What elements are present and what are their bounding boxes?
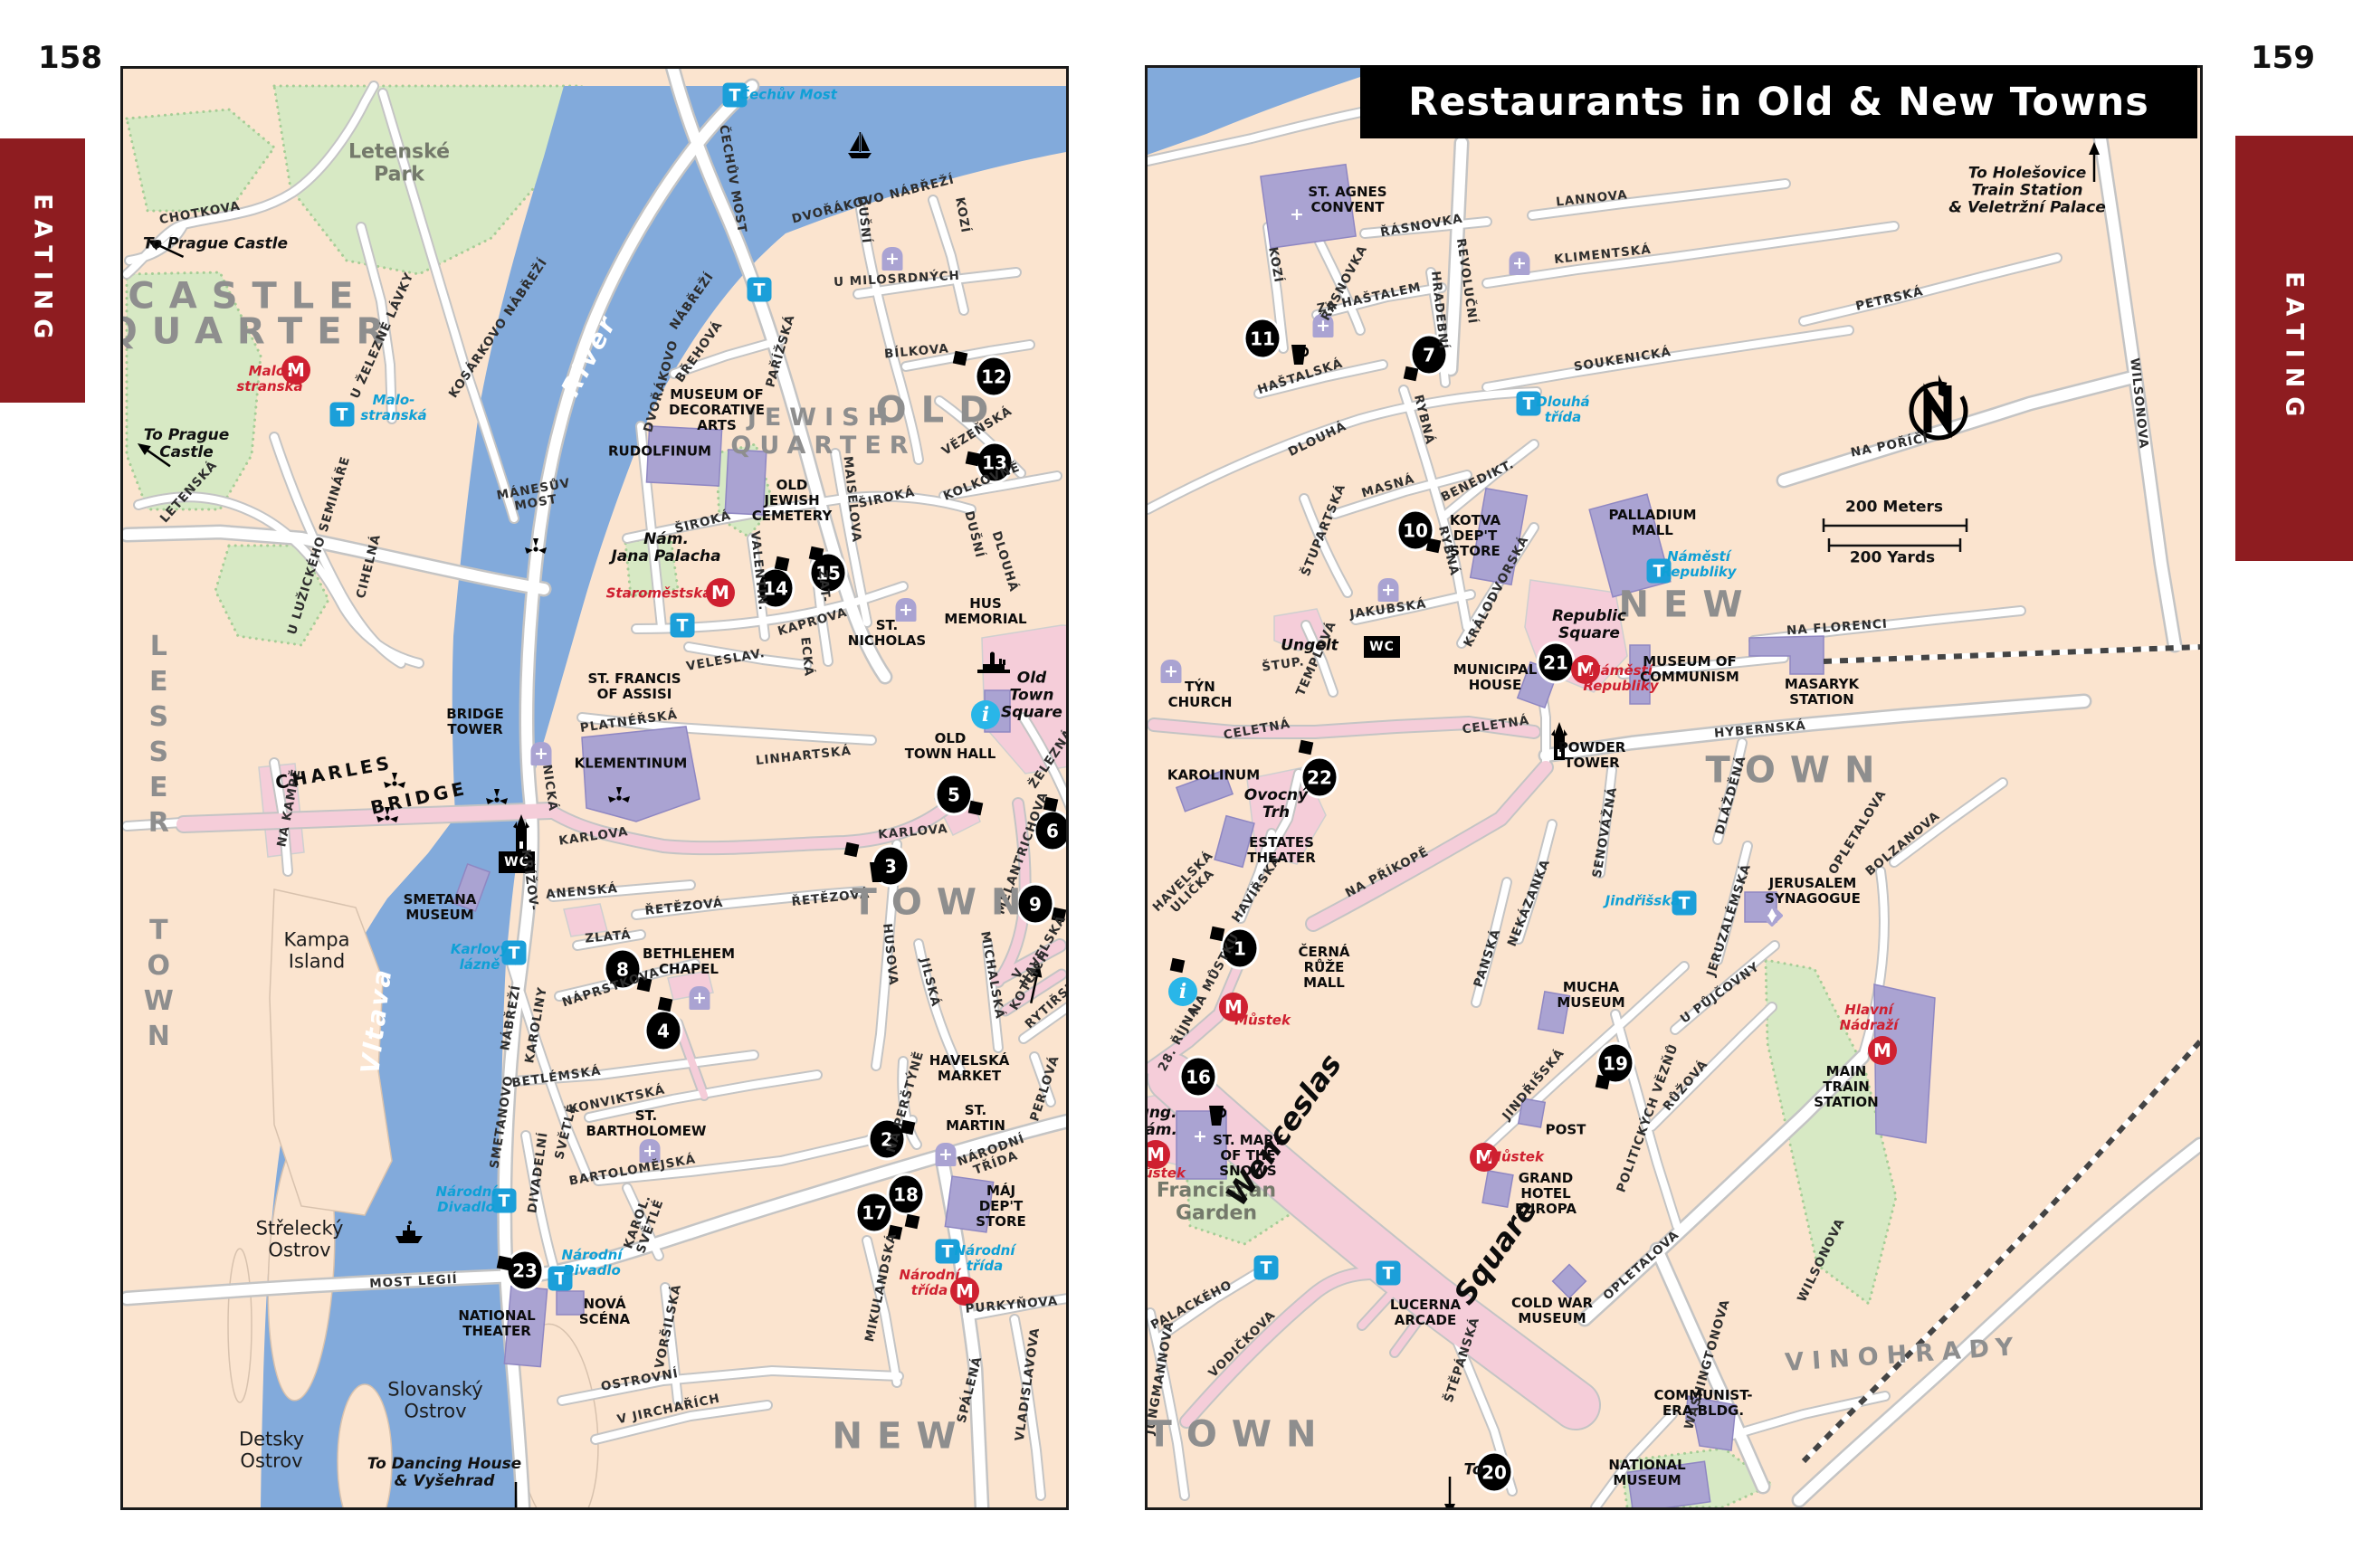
map-label: KLEMENTINUM	[575, 756, 688, 772]
metro-icon: M	[1868, 1036, 1897, 1065]
church-icon: +	[1161, 660, 1182, 683]
map-label: QUARTER	[120, 312, 398, 353]
map-label: Detsky Ostrov	[239, 1429, 304, 1471]
map-label: Dlouhá třída	[1536, 394, 1589, 425]
map-label: NÁPRSTKOVA	[560, 966, 661, 1011]
map-label: Můstek	[1488, 1150, 1544, 1165]
map-label: CELETNÁ	[1223, 717, 1291, 743]
map-label: NICKÁ	[539, 764, 559, 813]
map-label: POST	[1546, 1123, 1586, 1138]
map-label: VALENTIN.	[748, 530, 769, 612]
map-label: TÝN CHURCH	[1168, 679, 1233, 710]
map-label: ŠIROKÁ	[673, 509, 732, 537]
restaurant-marker: 9	[1019, 886, 1053, 923]
map-label: HRADEBNÍ	[1428, 271, 1450, 350]
building-square-icon	[1210, 927, 1225, 942]
map-label: KOTVA DEP'T STORE	[1450, 513, 1500, 558]
map-label: JERUZALÉMSKÁ	[1705, 862, 1754, 978]
map-label: LUCERNA ARCADE	[1390, 1297, 1461, 1328]
map-label: To Prague Castle	[143, 235, 288, 252]
map-label: ČECHŮV MOST	[716, 124, 748, 234]
map-label: NÁBŘEŽÍ	[499, 984, 524, 1052]
tram-stop-icon: T	[671, 613, 695, 638]
building-square-icon	[900, 1120, 916, 1136]
map-label: Ungelt	[1281, 637, 1338, 654]
map-label: MÁJ DEP'T STORE	[968, 1183, 1034, 1229]
restaurant-marker: 16	[1182, 1059, 1215, 1096]
map-label: NA PERŠTÝNĚ	[885, 1050, 928, 1155]
map-label: SMETANOVO	[488, 1074, 516, 1169]
map-label: ST. FRANCIS OF ASSISI	[587, 671, 681, 702]
map-label: V KOTCICH	[995, 942, 1053, 1013]
map-label: KARLOVA	[878, 822, 949, 842]
map-label: RYTIŘSKÁ	[1023, 972, 1069, 1032]
map-label: OPLETALOVA	[1601, 1229, 1682, 1304]
map-label: MAIN TRAIN STATION	[1814, 1064, 1878, 1109]
church-icon: +	[531, 742, 552, 765]
map-label: ŠTUP.	[1261, 655, 1305, 675]
map-label: DLÁŽDĚNÁ	[1713, 755, 1748, 837]
tram-stop-icon: T	[748, 278, 772, 302]
map-label: HAVÍŘSKÁ	[1230, 853, 1284, 925]
map-label: VELESLAV.	[685, 647, 766, 674]
map-label: MUNICIPAL HOUSE	[1453, 662, 1538, 693]
map-label: ŽAT-	[815, 569, 833, 603]
map-label: TOWN	[853, 883, 1036, 924]
tram-stop-icon: T	[1517, 392, 1541, 416]
building-square-icon	[1426, 538, 1442, 554]
map-label: V JIRCHAŘÍCH	[616, 1392, 721, 1428]
eating-tab-right: EATING	[2235, 136, 2353, 561]
tram-stop-icon: T	[330, 403, 355, 427]
map-label: PALACKÉHO	[1149, 1278, 1235, 1333]
metro-icon: M	[1145, 1140, 1170, 1169]
restaurant-marker: 8	[606, 951, 640, 988]
map-label: NÁBŘEŽÍ	[668, 271, 718, 333]
map-label: NA KAMPĚ	[275, 767, 304, 848]
map-label: TOWN	[1706, 751, 1890, 792]
map-label: OLD	[876, 391, 1004, 432]
map-label: JERUSALEM SYNAGOGUE	[1765, 876, 1861, 907]
map-label: ST. MARTIN	[946, 1103, 1005, 1134]
map-label: POWDER TOWER	[1558, 740, 1626, 771]
map-label: KONVIKTSKÁ	[567, 1083, 666, 1117]
map-label: VODIČKOVA	[1206, 1308, 1279, 1381]
restaurant-marker: 21	[1539, 644, 1573, 681]
metro-icon: M	[281, 356, 310, 385]
map-label: LESSER	[143, 631, 174, 850]
map-label: BÍLKOVA	[884, 342, 950, 361]
map-label: COLD WAR MUSEUM	[1511, 1296, 1593, 1326]
metro-icon: M	[706, 578, 735, 607]
restaurant-marker: 4	[647, 1012, 681, 1050]
building-square-icon	[905, 1214, 920, 1230]
building-square-icon	[1052, 908, 1067, 923]
building-square-icon	[1404, 366, 1419, 382]
restaurant-marker: 19	[1599, 1045, 1633, 1082]
map-label: Kampa Island	[284, 929, 350, 972]
building-square-icon	[775, 556, 790, 572]
map-label: CASTLE	[128, 277, 367, 318]
map-label: Malo- stranská	[236, 364, 302, 394]
map-label: WASHINGTONOVA	[1682, 1297, 1733, 1430]
map-label: BETLÉMSKÁ	[511, 1065, 603, 1091]
map-label: U LUŽICKÉHO SEMINÁŘE	[286, 455, 353, 637]
map-label: MASNÁ	[1360, 472, 1416, 500]
map-label: MUCHA MUSEUM	[1557, 980, 1624, 1011]
map-label: HAVELSKÁ MARKET	[929, 1053, 1010, 1084]
map-label: OLD TOWN HALL	[905, 731, 996, 762]
church-icon: +	[936, 1143, 957, 1166]
map-label: WILSONOVA	[1796, 1216, 1848, 1305]
church-icon: +	[882, 247, 903, 271]
map-label: SVĚTLÉ	[553, 1103, 580, 1161]
map-label: Střelecký Ostrov	[256, 1218, 344, 1260]
building-square-icon	[1299, 740, 1314, 755]
map-label: DUŠNÍ	[961, 509, 986, 559]
map-label: KLIMENTSKÁ	[1554, 243, 1653, 267]
map-label: ŘÁSNOVKA	[1319, 243, 1371, 324]
map-label: SMETANA MUSEUM	[404, 892, 477, 923]
map-label: NEW	[1619, 585, 1758, 626]
restaurant-marker: 7	[1413, 337, 1446, 374]
map-label: RŮŽOVÁ	[1661, 1058, 1710, 1114]
map-label: DIVADELNÍ	[526, 1131, 551, 1214]
map-label: PERLOVÁ	[1028, 1054, 1062, 1124]
map-label: KAROL. SVĚTLÉ	[622, 1193, 667, 1255]
restaurant-marker: 2	[871, 1121, 904, 1158]
map-label: Národní třída	[900, 1268, 960, 1298]
map-label: KRÁLODVORSKÁ	[1462, 534, 1532, 650]
wc-icon: WC	[1364, 636, 1400, 658]
map-label: SOUKENICKÁ	[1573, 346, 1672, 375]
map-label: Nám. Jana Palacha	[611, 531, 720, 565]
map-label: NEW	[833, 1417, 971, 1458]
metro-icon: M	[950, 1277, 979, 1306]
map-label: NÁRODNÍ TŘÍDA	[955, 1132, 1033, 1183]
map-label: MASARYK STATION	[1785, 677, 1859, 708]
map-label: MÁNESŮV MOST	[496, 477, 575, 517]
metro-icon: M	[1571, 655, 1600, 684]
tram-stop-icon: T	[1377, 1261, 1401, 1286]
map-label: VĚZEŇSKÁ	[939, 404, 1015, 459]
book-spread: 158 159 EATING EATING MMMTTTTTTTTiWC1213…	[0, 0, 2353, 1568]
map-label: KŘÍŽOV-	[519, 849, 541, 912]
map-label: KARLOVA	[558, 825, 630, 849]
map-label: LETENSKÁ	[158, 459, 221, 526]
church-icon: +	[1313, 314, 1334, 337]
map-label: CIHELNÁ	[355, 533, 384, 600]
map-label: NA MŮSTKU	[1188, 931, 1243, 1017]
map-title: Restaurants in Old & New Towns	[1360, 65, 2197, 138]
map-label: VINOHRADY	[1784, 1334, 2022, 1377]
map-label: PLATNÉŘSKÁ	[579, 708, 679, 736]
map-label: ST. BARTHOLOMEW	[586, 1108, 707, 1139]
church-icon: +	[690, 986, 710, 1010]
wc-icon: WC	[499, 851, 535, 873]
map-label: Old Town Square	[1001, 670, 1062, 721]
map-label: DVOŘÁKOVO	[642, 338, 681, 433]
map-label: Ovocný Trh	[1244, 787, 1308, 822]
map-label: ČERNÁ RŮŽE MALL	[1299, 945, 1350, 990]
map-label: Čechův Most	[739, 88, 837, 103]
building-square-icon	[966, 451, 981, 467]
tram-stop-icon: T	[548, 1267, 573, 1291]
map-label: KAPROVA	[776, 606, 849, 639]
map-label: Vltava	[356, 965, 397, 1076]
building-square-icon	[844, 842, 860, 858]
map-label: JEWISH	[748, 404, 896, 432]
map-label: MIKULANDSKÁ	[863, 1231, 900, 1343]
map-label: HAŠTALSKÁ	[1256, 357, 1345, 398]
map-label: Jung. Nám.	[1145, 1105, 1177, 1139]
map-label: NATIONAL MUSEUM	[1608, 1458, 1685, 1488]
map-label: 28. ŘÍJNA	[1157, 1003, 1203, 1074]
map-label: Slovanský Ostrov	[387, 1379, 482, 1421]
map-label: HAVELSKÁ	[1018, 913, 1069, 989]
church-icon: +	[896, 598, 917, 622]
restaurant-marker: 22	[1303, 759, 1337, 796]
map-label: Můstek	[1234, 1013, 1291, 1029]
map-label: VORŠILSKÁ	[653, 1283, 685, 1370]
tram-stop-icon: T	[1254, 1256, 1279, 1280]
map-label: JAKUBSKÁ	[1349, 598, 1428, 622]
map-label: ŠIROKÁ	[857, 486, 916, 511]
map-label: Národní Divadlo	[436, 1184, 497, 1215]
map-label: JINDŘIŠSKÁ	[1500, 1047, 1567, 1124]
map-label: OPLETALOVA	[1826, 788, 1890, 878]
map-label: Jindřišská	[1605, 894, 1681, 909]
restaurant-marker: 10	[1399, 512, 1433, 549]
map-label: DUŠNÍ	[854, 195, 873, 245]
map-label: Malo- stranská	[360, 393, 426, 423]
map-label: RUDOLFINUM	[608, 444, 711, 460]
map-label: Franciscan Garden	[1157, 1180, 1276, 1224]
map-label: MUSEUM OF COMMUNISM	[1640, 654, 1739, 685]
map-left-old-town: MMMTTTTTTTTiWC121314155639842181723+++++…	[120, 66, 1069, 1510]
building-square-icon	[888, 1225, 903, 1240]
map-label: BENEDIKT.	[1439, 458, 1517, 505]
restaurant-marker: 23	[509, 1252, 542, 1289]
map-label: RYBNÁ	[1411, 394, 1436, 446]
restaurant-marker: 20	[1478, 1454, 1511, 1491]
map-label: PETRSKÁ	[1854, 285, 1925, 314]
building-square-icon	[658, 997, 673, 1012]
map-label: LINHARTSKÁ	[755, 745, 852, 768]
tram-stop-icon: T	[723, 83, 748, 108]
restaurant-marker: 11	[1246, 320, 1280, 357]
map-label: ECKÁ	[797, 636, 815, 677]
map-label: To Holešovice Train Station & Veletržní …	[1948, 165, 2106, 216]
map-label: QUARTER	[730, 432, 916, 460]
map-label: Republic Square	[1552, 608, 1626, 642]
map-label: BOLZANOVA	[1863, 809, 1943, 879]
restaurant-marker: 5	[938, 776, 971, 813]
map-label: NEKÁZANKA	[1506, 857, 1554, 948]
map-label: ŠTĚPÁNSKÁ	[1443, 1316, 1483, 1404]
map-label: ST. NICHOLAS	[848, 618, 926, 649]
map-label: To	[1463, 1461, 1482, 1478]
map-label: HUS MEMORIAL	[944, 596, 1026, 627]
building-square-icon	[1596, 1075, 1611, 1090]
map-label: Můstek	[1145, 1166, 1186, 1182]
restaurant-marker: 3	[874, 848, 908, 885]
map-label: HYBERNSKÁ	[1714, 719, 1807, 741]
map-label: Letenské Park	[348, 141, 450, 185]
map-label: Staroměstská	[606, 586, 712, 602]
map-label: BRIDGE TOWER	[446, 707, 504, 737]
map-label: PURKYŇOVA	[965, 1295, 1059, 1316]
map-label: JUNGMANNOVA	[1145, 1320, 1176, 1436]
restaurant-marker: 14	[759, 570, 793, 607]
map-label: COMMUNIST- ERA BLDG.	[1654, 1388, 1753, 1419]
map-label: MOST LEGIÍ	[369, 1273, 458, 1291]
restaurant-marker: 17	[858, 1194, 891, 1231]
tram-stop-icon: T	[936, 1240, 960, 1264]
map-label: To Dancing House & Vyšehrad	[367, 1456, 521, 1490]
restaurant-marker: 13	[978, 444, 1012, 481]
map-label: NA POŘÍČÍ	[1850, 432, 1929, 460]
map-label: SPÁLENÁ	[956, 1355, 986, 1425]
map-label: GRAND HOTEL EUROPA	[1515, 1171, 1577, 1216]
map-label: ŘETĚZOVÁ	[644, 897, 724, 918]
tram-stop-icon: T	[1672, 891, 1697, 916]
map-label: KOZÍ	[952, 196, 972, 234]
map-label: Hlavní Nádraží	[1840, 1003, 1899, 1033]
map-label: MAISELOVA	[840, 455, 862, 543]
building-square-icon	[968, 801, 984, 816]
map-label: WILSONOVA	[2127, 357, 2150, 450]
map-label: HAVELSKÁ ULIČKA	[1150, 849, 1225, 924]
map-label: ST. MARY OF THE SNOWS	[1213, 1133, 1283, 1178]
map-label: Wenceslas	[1220, 1049, 1348, 1212]
map-label: CHOTKOVA	[158, 200, 242, 228]
building-square-icon	[1043, 797, 1059, 813]
map-label: MICHALSKÁ	[977, 930, 1006, 1020]
map-label: 200 Yards	[1850, 549, 1935, 566]
map-label: NA FLORENCI	[1786, 618, 1889, 639]
restaurant-marker: 12	[977, 358, 1011, 395]
church-icon: +	[1287, 203, 1308, 226]
map-label: KOSÁRKOVO NÁBŘEŽÍ	[447, 256, 551, 401]
restaurant-marker: 18	[890, 1176, 923, 1213]
map-label: JILSKÁ	[917, 956, 942, 1008]
tram-stop-icon: T	[502, 941, 527, 965]
church-icon: +	[640, 1139, 661, 1163]
map-label: POLITICKÝCH VĚZŇŮ	[1615, 1042, 1681, 1194]
map-label: PAŘÍŽSKÁ	[764, 313, 797, 389]
info-icon: i	[971, 700, 1000, 729]
map-label: MELANTRICHOVA	[994, 790, 1051, 916]
map-label: BARTOLOMĚJSKÁ	[568, 1153, 698, 1189]
map-label: TEMPLOVÁ	[1294, 619, 1339, 698]
map-label: BRIDGE	[368, 778, 469, 819]
map-label: Square	[1448, 1193, 1544, 1310]
map-label: OLD JEWISH CEMETERY	[752, 478, 833, 523]
building-square-icon	[809, 546, 824, 562]
church-icon: +	[1378, 578, 1399, 602]
map-label: SENOVÁŽNÁ	[1591, 786, 1621, 879]
map-label: NOVÁ SCÉNA	[579, 1297, 630, 1327]
map-label: River	[556, 310, 622, 402]
map-label: Karlovy lázně	[451, 942, 509, 973]
map-label: Náměstí Republiky	[1583, 663, 1658, 694]
building-square-icon	[637, 977, 653, 993]
page-number-right: 159	[2251, 40, 2315, 76]
map-label: NATIONAL THEATER	[458, 1308, 535, 1339]
map-label: DVOŘÁKOVO NÁBŘEŽÍ	[791, 173, 957, 226]
map-label: TOWN	[143, 915, 174, 1063]
map-label: ESTATES THEATER	[1247, 835, 1316, 866]
map-label: ŘETĚZOVÁ	[791, 888, 871, 909]
map-label: REVOLUČNÍ	[1453, 238, 1479, 326]
map-label: VLADISLAVOVA	[1014, 1326, 1043, 1442]
map-label: ANENSKÁ	[546, 882, 619, 902]
tram-stop-icon: T	[492, 1189, 517, 1213]
map-label: LANNOVA	[1556, 188, 1629, 209]
map-label: CHARLES	[273, 753, 394, 794]
building-square-icon	[497, 1256, 512, 1271]
map-label: CELETNÁ	[1462, 714, 1530, 736]
page-number-left: 158	[38, 40, 102, 76]
building-square-icon	[953, 351, 968, 366]
map-label: KAROLINY	[523, 986, 550, 1065]
restaurant-marker: 15	[812, 555, 845, 592]
map-label: U PŮJČOVNY	[1678, 960, 1762, 1026]
metro-icon: M	[1470, 1143, 1499, 1172]
map-label: PANSKÁ	[1472, 927, 1503, 989]
map-label: RYBNÁ	[1435, 525, 1461, 577]
map-label: ŽELEZNÁ	[1027, 727, 1069, 792]
restaurant-marker: 1	[1224, 930, 1257, 967]
map-label: ŘÁSNOVKA	[1379, 213, 1464, 241]
metro-icon: M	[1219, 993, 1248, 1022]
map-label: ŠTUPARTSKÁ	[1300, 482, 1349, 578]
restaurant-marker: 6	[1036, 813, 1070, 850]
map-label: KOLKOVNĚ	[942, 461, 1023, 504]
map-label: Národní třída	[955, 1243, 1015, 1274]
info-icon: i	[1168, 977, 1197, 1006]
map-label: Náměstí Republiky	[1661, 549, 1736, 580]
eating-tab-left: EATING	[0, 138, 85, 403]
map-right-new-town: 1171022211161920MMMMMTTTTTiWC++++++ST. A…	[1145, 65, 2203, 1510]
map-label: NA PŘÍKOPĚ	[1343, 845, 1431, 900]
map-label: TOWN	[1148, 1415, 1331, 1456]
church-icon: +	[1190, 1125, 1211, 1148]
tram-stop-icon: T	[1647, 559, 1672, 584]
church-icon: +	[1510, 252, 1530, 275]
building-square-icon	[1170, 958, 1186, 974]
map-label: HUSOVA	[880, 923, 900, 986]
map-label: KAROLINUM	[1167, 768, 1260, 784]
map-label: DLOUHÁ	[1286, 420, 1348, 460]
map-label: 200 Meters	[1845, 499, 1943, 516]
map-label: DLOUHÁ	[989, 530, 1021, 594]
map-label: PALLADIUM MALL	[1608, 508, 1696, 538]
map-label: BETHLEHEM CHAPEL	[643, 946, 735, 977]
map-label: BŘEHOVÁ	[673, 318, 726, 385]
map-label: ST. AGNES CONVENT	[1308, 185, 1386, 215]
map-label: U MILOSRDNÝCH	[834, 270, 960, 290]
map-label: U ŽELEZNÉ LÁVKY	[348, 271, 416, 401]
map-label: Národní Divadlo	[562, 1248, 623, 1278]
map-label: KOZÍ	[1265, 246, 1285, 284]
map-label: ZLATÁ	[585, 928, 633, 946]
map-label: To Prague Castle	[144, 427, 230, 461]
map-label: MUSEUM OF DECORATIVE ARTS	[669, 387, 765, 432]
map-label: ZA HAŠTALEM	[1316, 280, 1423, 316]
map-label: OSTROVNÍ	[600, 1367, 680, 1394]
